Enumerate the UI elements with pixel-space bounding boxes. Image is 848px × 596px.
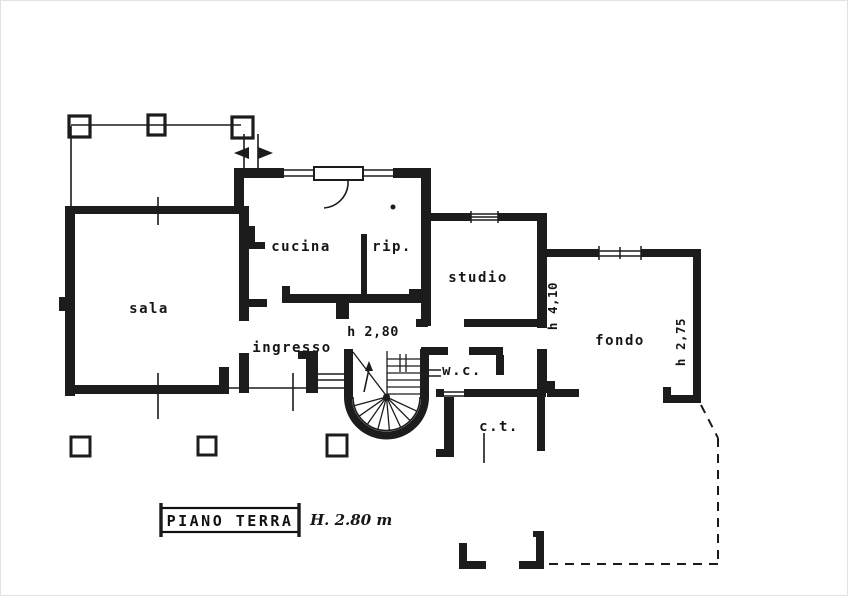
walls [59,168,701,569]
floor-plan-page: sala cucina rip. studio ingresso fondo w… [0,0,848,596]
door-hinge-dot [391,205,396,210]
height-label-studio-fondo-wall: h 4,10 [545,282,560,330]
floor-title: PIANO TERRA [167,512,294,530]
height-label-fondo-right-wall: h 2,75 [673,318,688,366]
floor-plan-drawing: sala cucina rip. studio ingresso fondo w… [1,1,848,596]
room-label-studio: studio [448,270,508,286]
porch-columns [71,435,347,456]
pergola [69,115,253,206]
stair-up-arrow [364,369,369,392]
room-label-rip: rip. [372,239,412,255]
room-label-ingresso: ingresso [252,340,331,356]
stair-center-pole [383,394,390,401]
ceiling-height-note: H. 2.80 m [309,511,392,529]
room-label-wc: w.c. [442,363,482,379]
room-label-cucina: cucina [271,239,331,255]
property-boundary-dashed [547,405,718,564]
window-frame [314,167,363,180]
thin-lines [158,197,484,463]
arrow-right-icon [258,147,273,159]
stair-up-arrowhead [365,361,373,371]
spiral-staircase [348,351,425,436]
room-label-sala: sala [129,301,169,317]
arrow-left-icon [234,147,249,159]
height-label-corridor: h 2,80 [347,324,399,340]
room-label-ct: c.t. [479,419,519,435]
room-label-fondo: fondo [595,333,645,349]
title-block: PIANO TERRA H. 2.80 m [161,503,392,537]
